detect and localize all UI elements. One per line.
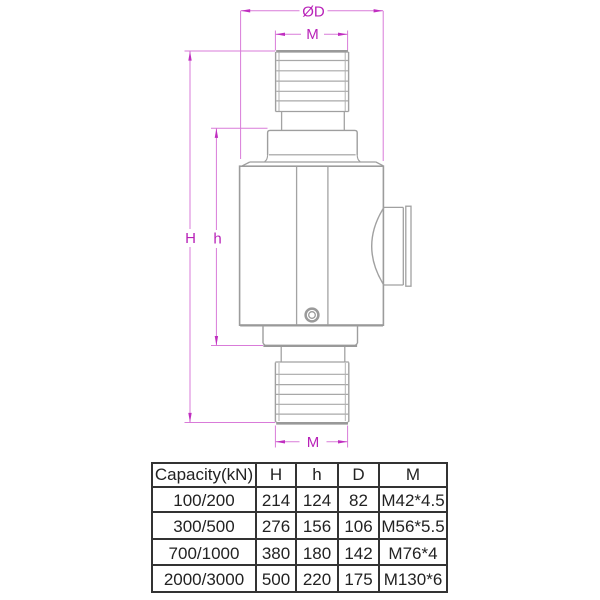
svg-text:H: H bbox=[185, 230, 196, 247]
svg-text:M: M bbox=[307, 434, 320, 451]
svg-text:M: M bbox=[306, 26, 319, 43]
svg-text:h: h bbox=[213, 230, 221, 247]
svg-text:ØD: ØD bbox=[302, 3, 325, 20]
